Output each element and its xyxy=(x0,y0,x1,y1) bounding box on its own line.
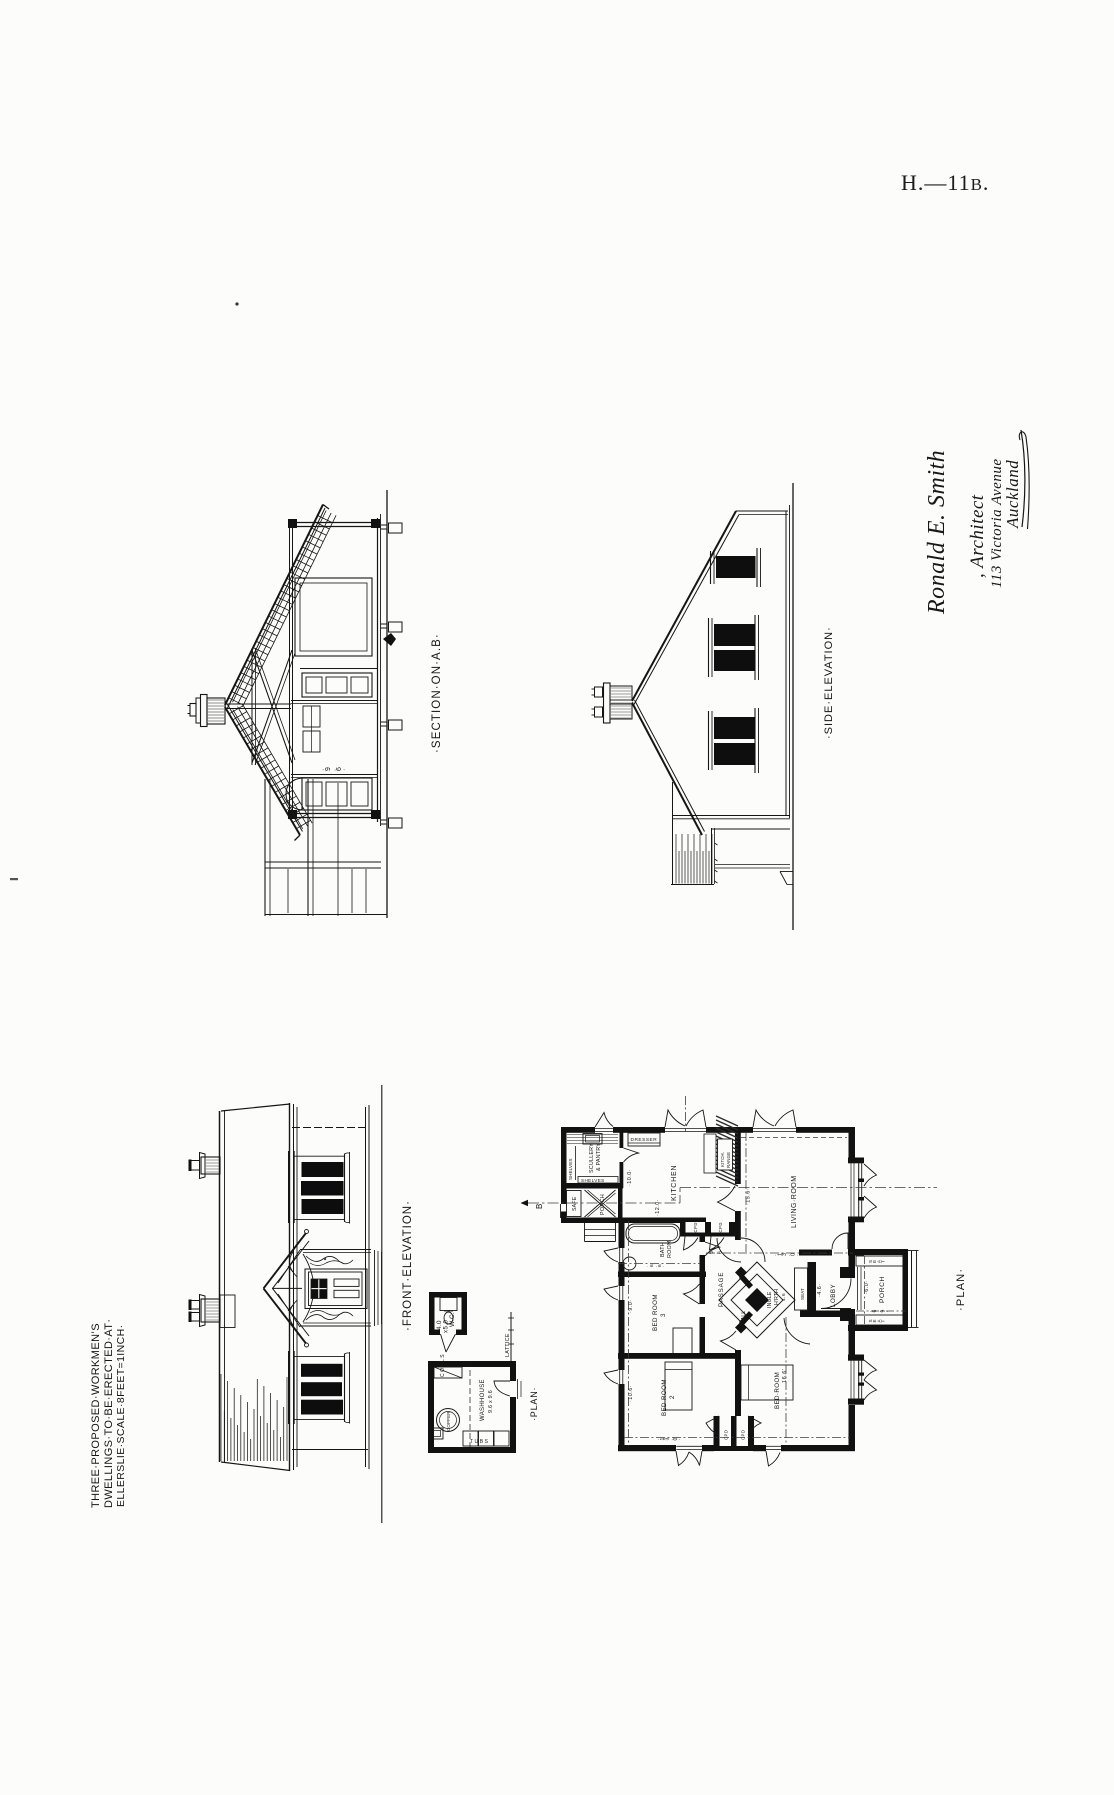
svg-text:·SIDE·ELEVATION·: ·SIDE·ELEVATION· xyxy=(823,626,835,739)
svg-text:PORCH: PORCH xyxy=(600,1194,606,1215)
svg-text:·6.0·: ·6.0· xyxy=(864,1280,870,1294)
svg-text:·5.6·: ·5.6· xyxy=(705,1251,728,1254)
svg-text:LIVING·ROOM: LIVING·ROOM xyxy=(791,1175,798,1228)
svg-text:LOBBY: LOBBY xyxy=(830,1284,837,1307)
svg-text:·SECTION·ON·A.B·: ·SECTION·ON·A.B· xyxy=(431,633,443,753)
svg-text:SEAT: SEAT xyxy=(800,1288,805,1300)
svg-text:CPD: CPD xyxy=(724,1430,729,1440)
svg-text:3: 3 xyxy=(660,1313,667,1317)
svg-text:Ronald E. Smith: Ronald E. Smith xyxy=(924,450,950,615)
svg-text:& PANTRY: & PANTRY xyxy=(596,1143,602,1171)
svg-text:BATH: BATH xyxy=(660,1242,666,1257)
svg-text:4.6: 4.6 xyxy=(781,1293,787,1301)
svg-text:C O A L S: C O A L S xyxy=(440,1354,446,1377)
svg-text:SHELVES: SHELVES xyxy=(568,1158,573,1180)
svg-text:H.—11B.: H.—11B. xyxy=(901,170,989,195)
svg-text:BED·ROOM: BED·ROOM xyxy=(774,1372,781,1409)
svg-text:·FRONT·ELEVATION·: ·FRONT·ELEVATION· xyxy=(402,1200,414,1331)
svg-text:HALL: HALL xyxy=(741,1311,747,1324)
svg-text:x5.0: x5.0 xyxy=(444,1319,450,1333)
svg-text:ROOM: ROOM xyxy=(667,1240,673,1258)
svg-text:, Architect: , Architect xyxy=(967,494,988,578)
svg-text:B: B xyxy=(535,1204,544,1209)
svg-text:·6.6·: ·6.6· xyxy=(646,1264,667,1267)
svg-text:BED ROOM: BED ROOM xyxy=(661,1379,668,1416)
svg-text:SCULLERY: SCULLERY xyxy=(589,1143,595,1173)
svg-text:T U B S: T U B S xyxy=(470,1439,489,1445)
svg-text:·9.6·: ·9.6· xyxy=(320,767,348,771)
svg-text:ELLERSLIE·SCALE·8FEET=1INCH·: ELLERSLIE·SCALE·8FEET=1INCH· xyxy=(115,1325,127,1507)
svg-text:Auckland: Auckland xyxy=(1003,460,1022,529)
svg-text:SHELVES: SHELVES xyxy=(581,1178,605,1183)
svg-text:·9.0·: ·9.0· xyxy=(628,1299,634,1313)
svg-text:BED ROOM: BED ROOM xyxy=(652,1294,659,1331)
svg-text:THREE·PROPOSED·WORKMEN’S: THREE·PROPOSED·WORKMEN’S xyxy=(90,1323,102,1508)
svg-text:·15.6·: ·15.6· xyxy=(746,1188,752,1205)
svg-text:CPD: CPD xyxy=(693,1222,698,1232)
svg-text:·13.0·: ·13.0· xyxy=(656,1438,683,1441)
svg-text:·13.0·: ·13.0· xyxy=(773,1253,801,1256)
svg-text:RANGE: RANGE xyxy=(726,1152,731,1168)
svg-text:DRESSER: DRESSER xyxy=(631,1137,658,1143)
svg-text:DWELLINGS·TO·BE·ERECTED·AT·: DWELLINGS·TO·BE·ERECTED·AT· xyxy=(103,1319,115,1508)
svg-text:KITCH.: KITCH. xyxy=(720,1152,725,1167)
svg-text:·10.6·: ·10.6· xyxy=(628,1385,634,1402)
svg-text:INGLE: INGLE xyxy=(767,1291,773,1308)
svg-text:·12.0·: ·12.0· xyxy=(655,1199,661,1216)
svg-text:CPD: CPD xyxy=(741,1430,746,1440)
svg-text:PORCH: PORCH xyxy=(879,1276,886,1303)
svg-text:·4.6·: ·4.6· xyxy=(817,1283,823,1297)
svg-text:KITCHEN: KITCHEN xyxy=(671,1165,678,1201)
svg-text:PASSAGE: PASSAGE xyxy=(718,1272,725,1307)
svg-text:·PLAN·: ·PLAN· xyxy=(955,1268,967,1311)
svg-text:SEAT: SEAT xyxy=(868,1259,886,1263)
svg-text:LATTICE: LATTICE xyxy=(505,1333,511,1357)
svg-text:SEAT: SEAT xyxy=(868,1319,886,1323)
svg-text:2: 2 xyxy=(669,1395,676,1399)
svg-text:WASHHOUSE: WASHHOUSE xyxy=(480,1379,486,1421)
svg-text:4.0: 4.0 xyxy=(436,1320,443,1330)
svg-text:SAFE: SAFE xyxy=(572,1196,578,1211)
svg-text:H’RTH: H’RTH xyxy=(774,1289,780,1305)
svg-text:16.6’: 16.6’ xyxy=(782,1368,788,1383)
svg-text:·PLAN·: ·PLAN· xyxy=(529,1387,539,1421)
svg-text:·10.0·: ·10.0· xyxy=(627,1169,633,1186)
svg-text:9.6 x 9.6: 9.6 x 9.6 xyxy=(488,1390,494,1413)
svg-text:W.C.: W.C. xyxy=(449,1312,456,1327)
svg-text:COPPER: COPPER xyxy=(446,1411,451,1431)
svg-text:CPD: CPD xyxy=(718,1222,723,1232)
